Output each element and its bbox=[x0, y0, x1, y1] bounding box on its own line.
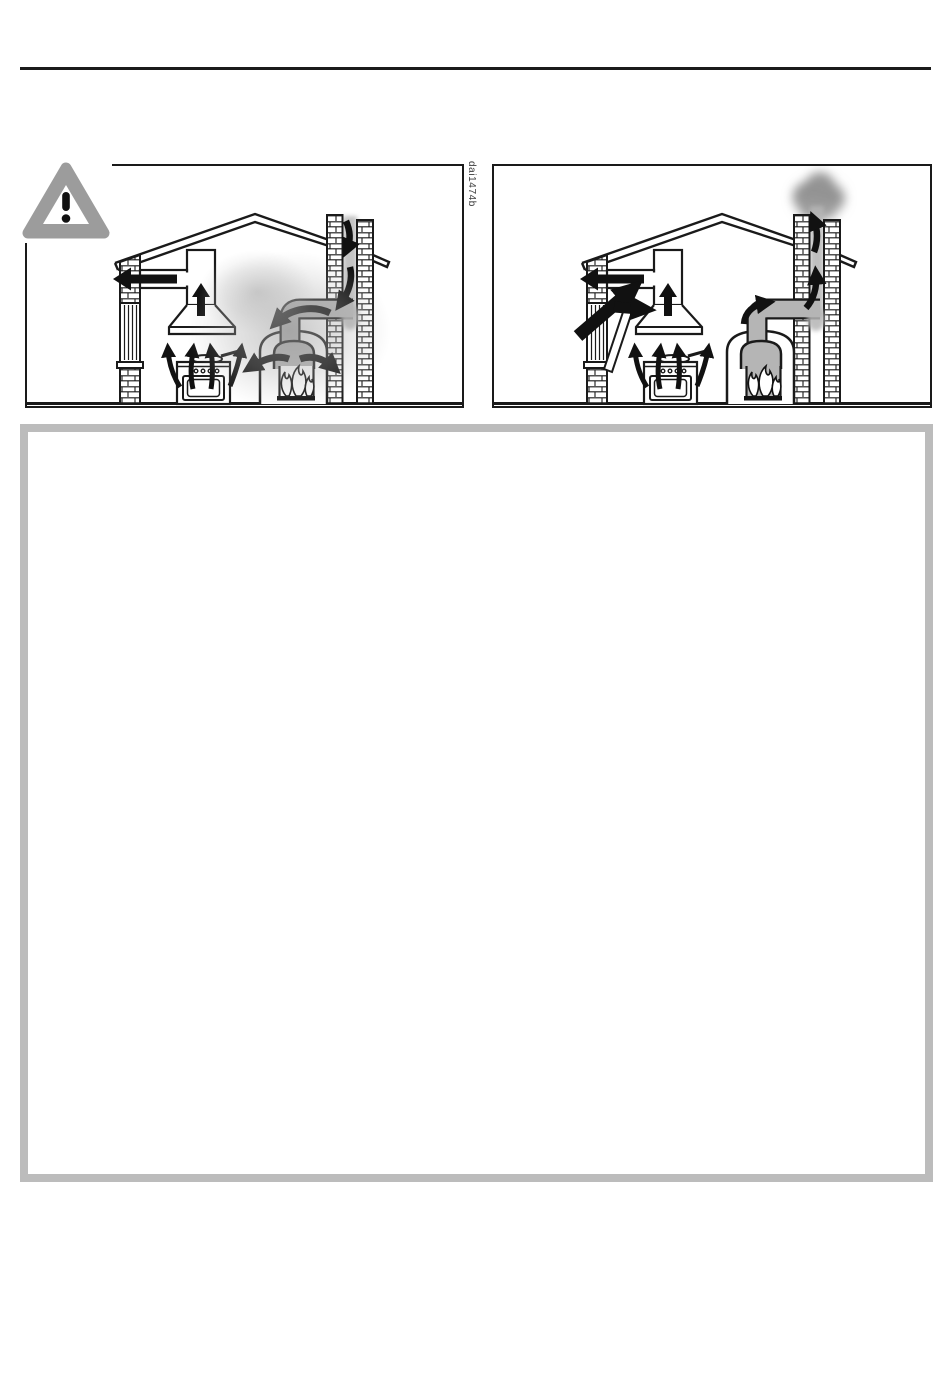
top-rule bbox=[20, 67, 931, 70]
warning-icon bbox=[20, 157, 112, 243]
manual-page: dai1474b bbox=[0, 0, 950, 1383]
correct-ventilation-illustration bbox=[494, 166, 930, 406]
stove bbox=[644, 351, 706, 404]
figure-code-label: dai1474b bbox=[466, 161, 477, 207]
warning-triangle-icon bbox=[20, 157, 112, 243]
empty-callout-box bbox=[20, 424, 933, 1182]
figure-panel-correct bbox=[492, 164, 932, 408]
